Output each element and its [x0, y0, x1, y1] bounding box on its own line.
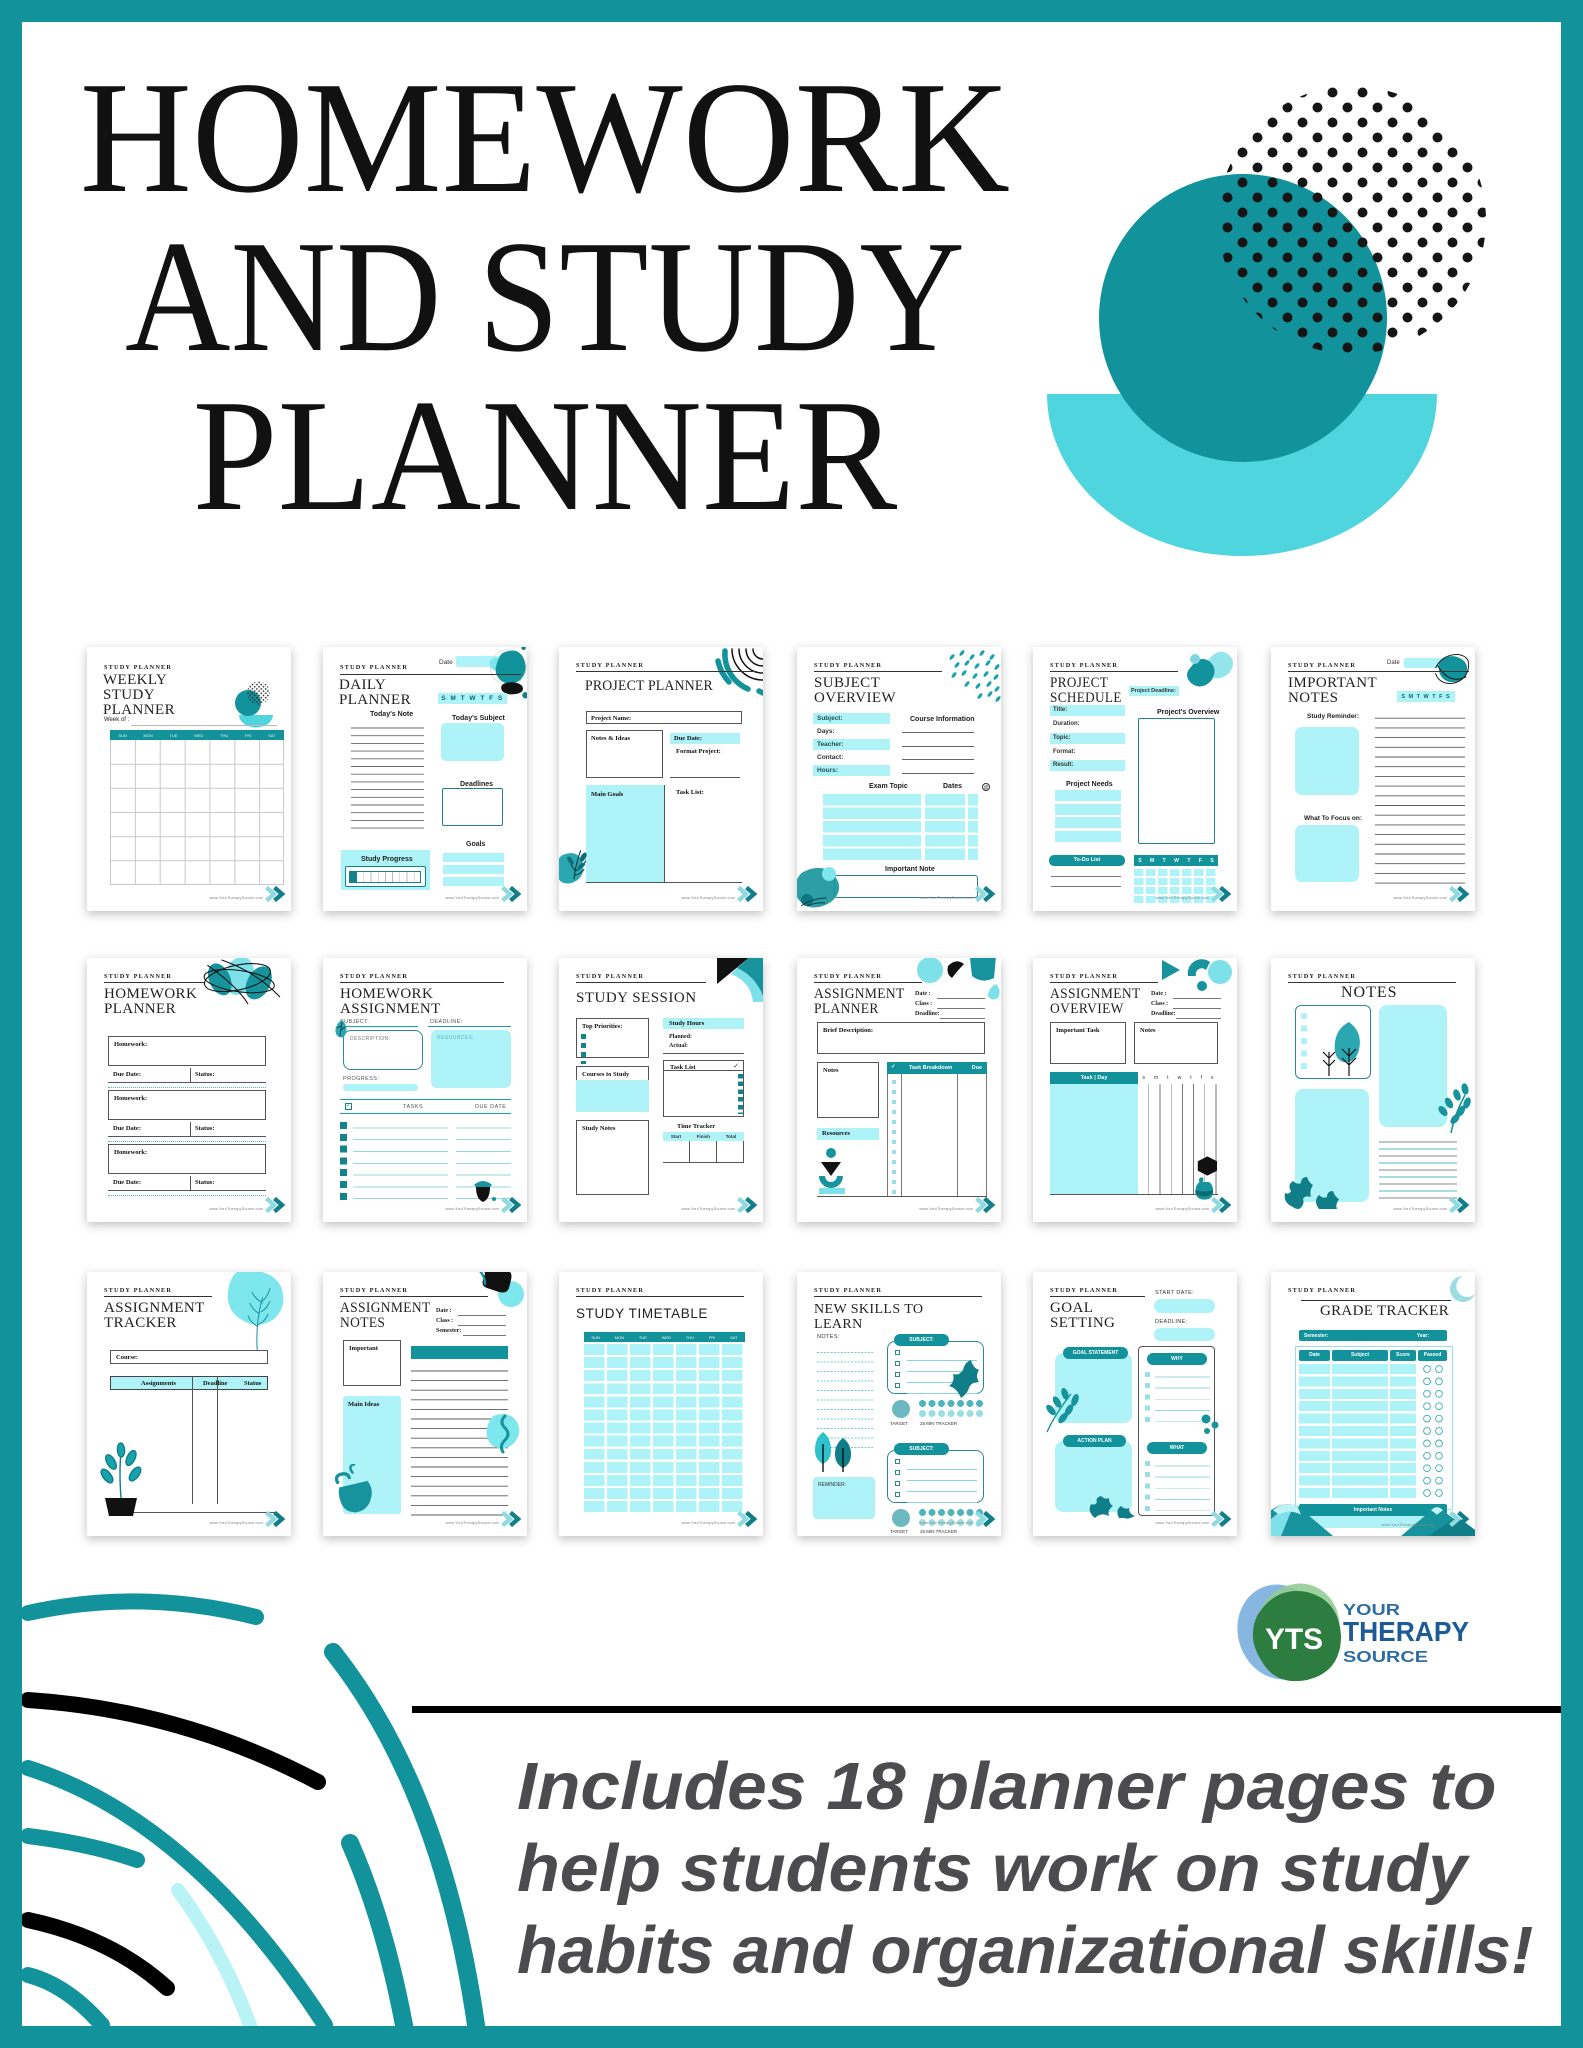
svg-text:YTS: YTS: [1265, 1623, 1323, 1656]
svg-text:SOURCE: SOURCE: [1343, 1649, 1428, 1666]
svg-text:THERAPY: THERAPY: [1343, 1616, 1469, 1647]
